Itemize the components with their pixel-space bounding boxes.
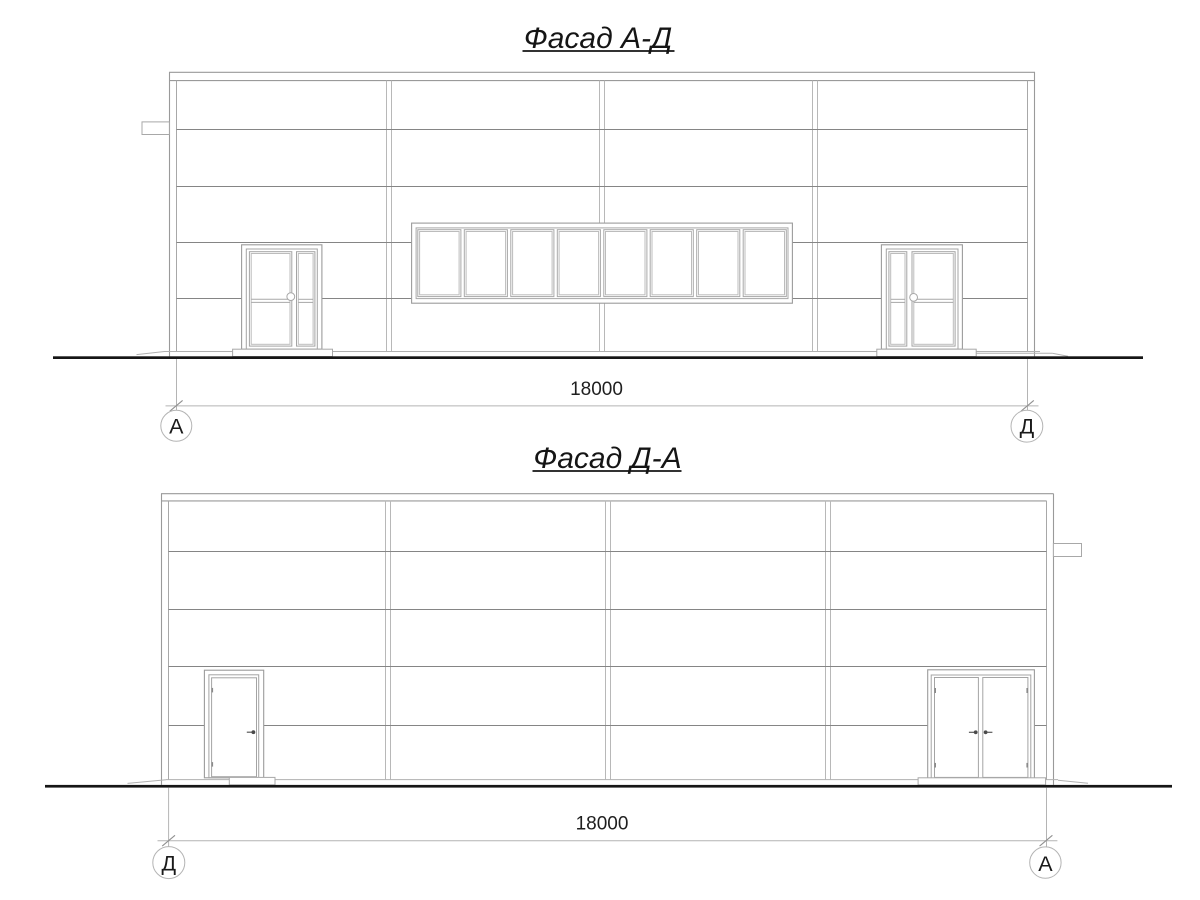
- svg-text:А: А: [1038, 852, 1053, 876]
- svg-text:Д: Д: [162, 852, 177, 876]
- svg-text:А: А: [169, 414, 184, 438]
- svg-text:18000: 18000: [576, 814, 629, 835]
- svg-text:Д: Д: [1020, 415, 1035, 439]
- svg-text:18000: 18000: [570, 379, 623, 400]
